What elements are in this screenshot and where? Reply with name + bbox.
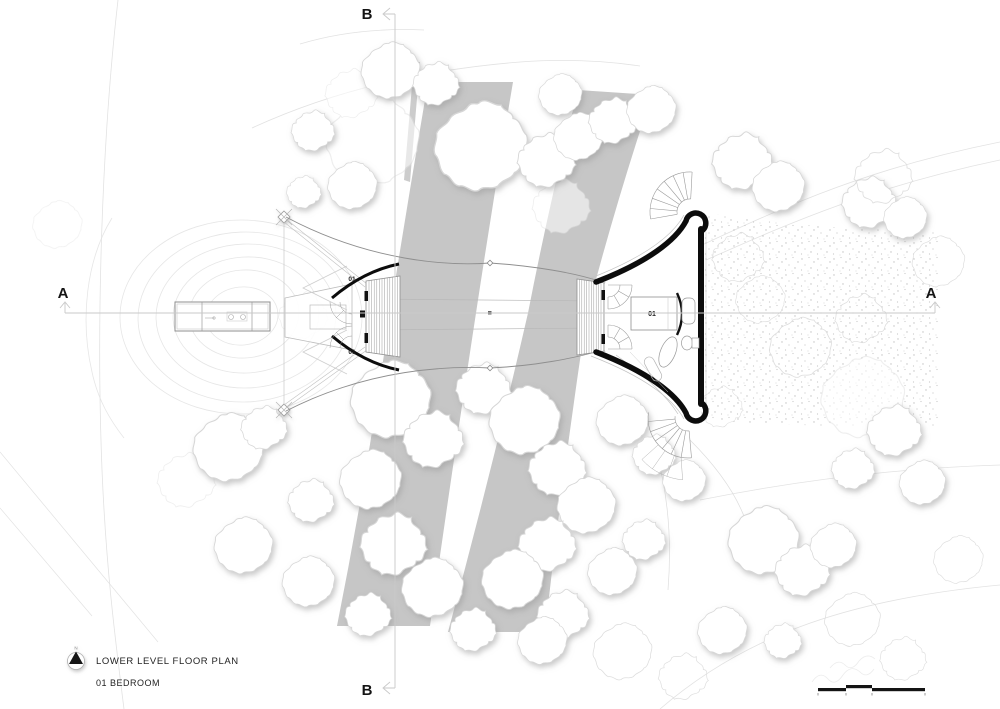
bedroom-number-label: 01 bbox=[648, 311, 656, 318]
plan-subtitle: 01 BEDROOM bbox=[96, 678, 160, 688]
mast-north bbox=[276, 209, 292, 225]
section-marker-a-left: A bbox=[58, 285, 69, 302]
fan-stair-north bbox=[650, 172, 692, 219]
wall-label-bottom: 01 bbox=[348, 349, 356, 356]
stair-band-west bbox=[360, 276, 400, 357]
floor-plan-sheet: 01 01 01 A A B B N LOWER LEVEL FLOOR PLA… bbox=[0, 0, 1000, 709]
shower bbox=[682, 298, 695, 324]
section-marker-b-bottom: B bbox=[362, 682, 373, 699]
stair-band-east bbox=[577, 279, 605, 355]
toilet bbox=[682, 336, 693, 350]
section-marker-a-right: A bbox=[926, 285, 937, 302]
plan-title: LOWER LEVEL FLOOR PLAN bbox=[96, 656, 239, 667]
mast-south bbox=[276, 402, 292, 418]
section-marker-b-top: B bbox=[362, 6, 373, 23]
wall-label-top: 01 bbox=[348, 276, 356, 283]
scale-bar bbox=[818, 685, 926, 696]
floor-plan-canvas: 01 01 01 A A B B N LOWER LEVEL FLOOR PLA… bbox=[0, 0, 1000, 709]
cable-marker-north bbox=[487, 260, 493, 266]
title-block: N LOWER LEVEL FLOOR PLAN 01 BEDROOM bbox=[68, 646, 239, 689]
north-label: N bbox=[74, 646, 77, 651]
north-arrow-icon: N bbox=[68, 646, 85, 670]
walkway-west bbox=[175, 302, 270, 331]
